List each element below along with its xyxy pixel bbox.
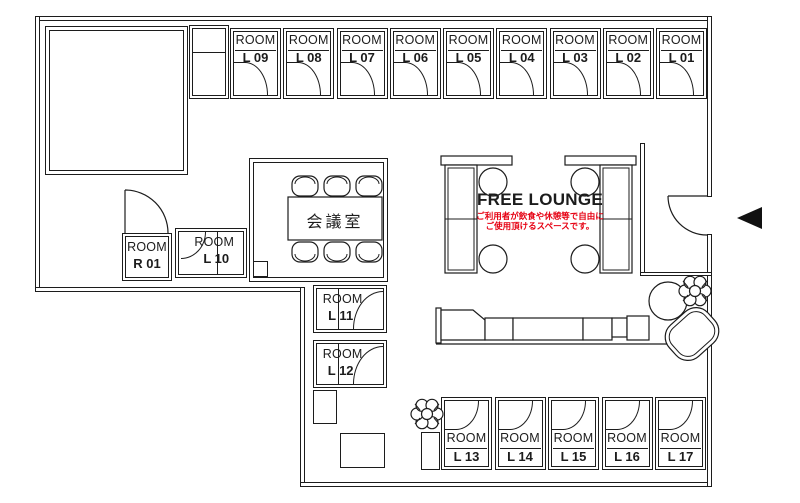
free-lounge-title: FREE LOUNGE: [448, 190, 632, 210]
meeting-room-label: 会議室: [288, 208, 382, 232]
lounge-table: [479, 245, 507, 273]
floor-plan: ROOML 09ROOML 08ROOML 07ROOML 06ROOML 05…: [0, 0, 800, 503]
plant-icon: [411, 399, 443, 428]
free-lounge-note: ご利用者が飲食や休憩等で自由に ご使用頂けるスペースです。: [444, 211, 636, 231]
door-swing-r01: [125, 190, 168, 233]
lounge-table: [571, 245, 599, 273]
free-lounge-note-line2: ご使用頂けるスペースです。: [444, 221, 636, 231]
entrance-arrow-icon: [737, 207, 762, 229]
free-lounge-note-line1: ご利用者が飲食や休憩等で自由に: [444, 211, 636, 221]
entrance-door: [668, 196, 707, 235]
plant-icon: [679, 276, 711, 305]
furniture-layer: [0, 0, 800, 503]
